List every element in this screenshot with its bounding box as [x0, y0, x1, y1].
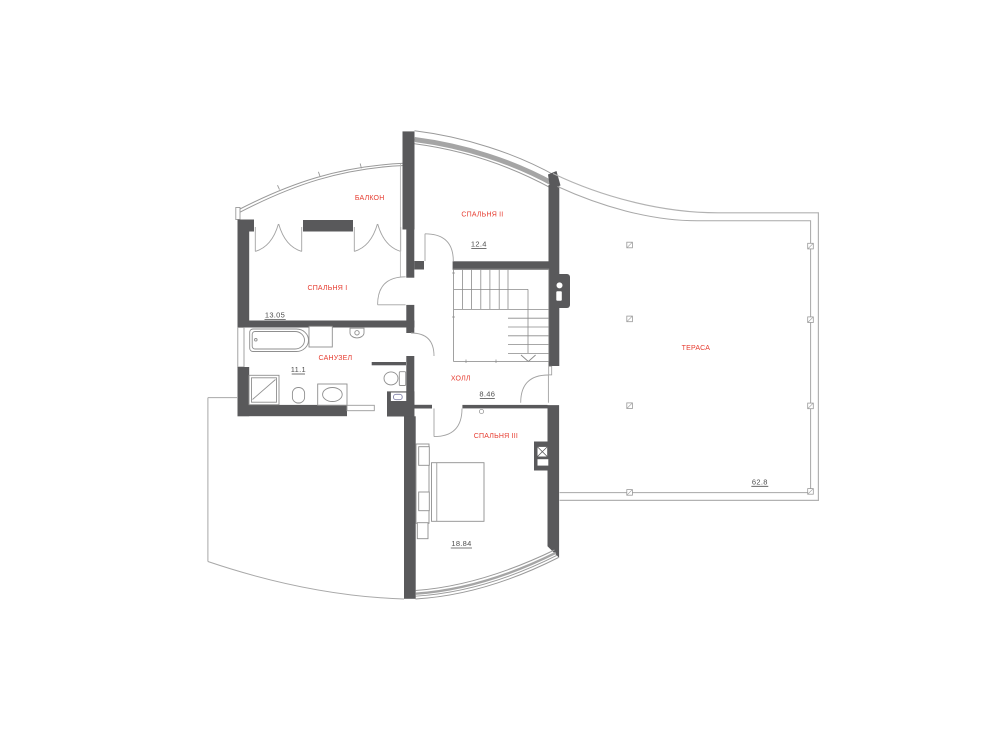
svg-text:САНУЗЕЛ: САНУЗЕЛ — [318, 355, 352, 362]
svg-text:БАЛКОН: БАЛКОН — [355, 195, 385, 202]
svg-text:СПАЛЬНЯ III: СПАЛЬНЯ III — [474, 433, 518, 440]
svg-text:18.84: 18.84 — [451, 539, 471, 548]
svg-text:СПАЛЬНЯ II: СПАЛЬНЯ II — [461, 212, 503, 219]
svg-text:62.8: 62.8 — [752, 477, 768, 486]
svg-text:12.4: 12.4 — [471, 240, 487, 249]
svg-text:СПАЛЬНЯ I: СПАЛЬНЯ I — [307, 285, 347, 292]
svg-text:ХОЛЛ: ХОЛЛ — [451, 376, 471, 383]
svg-text:8.46: 8.46 — [479, 389, 495, 398]
svg-text:13.05: 13.05 — [265, 311, 285, 320]
svg-text:ТЕРАСА: ТЕРАСА — [682, 345, 711, 352]
svg-text:11.1: 11.1 — [291, 365, 306, 374]
